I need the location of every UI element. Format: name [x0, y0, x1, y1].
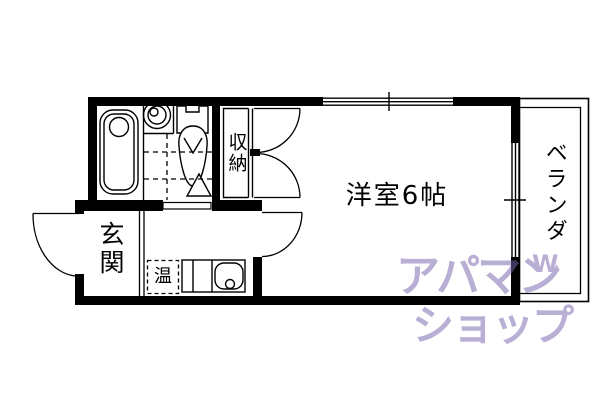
floor-plan: 洋室6帖 収納 玄関 温 ベランダ アパマン W ショップ: [0, 0, 600, 400]
bathtub-icon: [100, 110, 138, 194]
balcony-label: ベランダ: [542, 141, 566, 245]
closet-label: 収納: [226, 132, 247, 174]
washbasin-icon: [144, 102, 174, 201]
kitchen-counter: [182, 260, 245, 292]
entrance-door: [33, 214, 79, 277]
balcony-window: [504, 143, 526, 257]
washroom-threshold: [163, 203, 211, 210]
kitchen-sink-icon: [215, 263, 243, 289]
water-heater-label: 温: [154, 267, 172, 286]
top-window: [323, 92, 453, 111]
toilet-icon: [177, 106, 211, 196]
closet-double-doors: [250, 109, 300, 198]
room-label: 洋室6帖: [317, 182, 477, 210]
entrance-partition: [140, 211, 145, 296]
entrance-label: 玄関: [97, 221, 124, 277]
room-door: [262, 213, 302, 257]
floor-plan-drawing: [0, 0, 600, 400]
